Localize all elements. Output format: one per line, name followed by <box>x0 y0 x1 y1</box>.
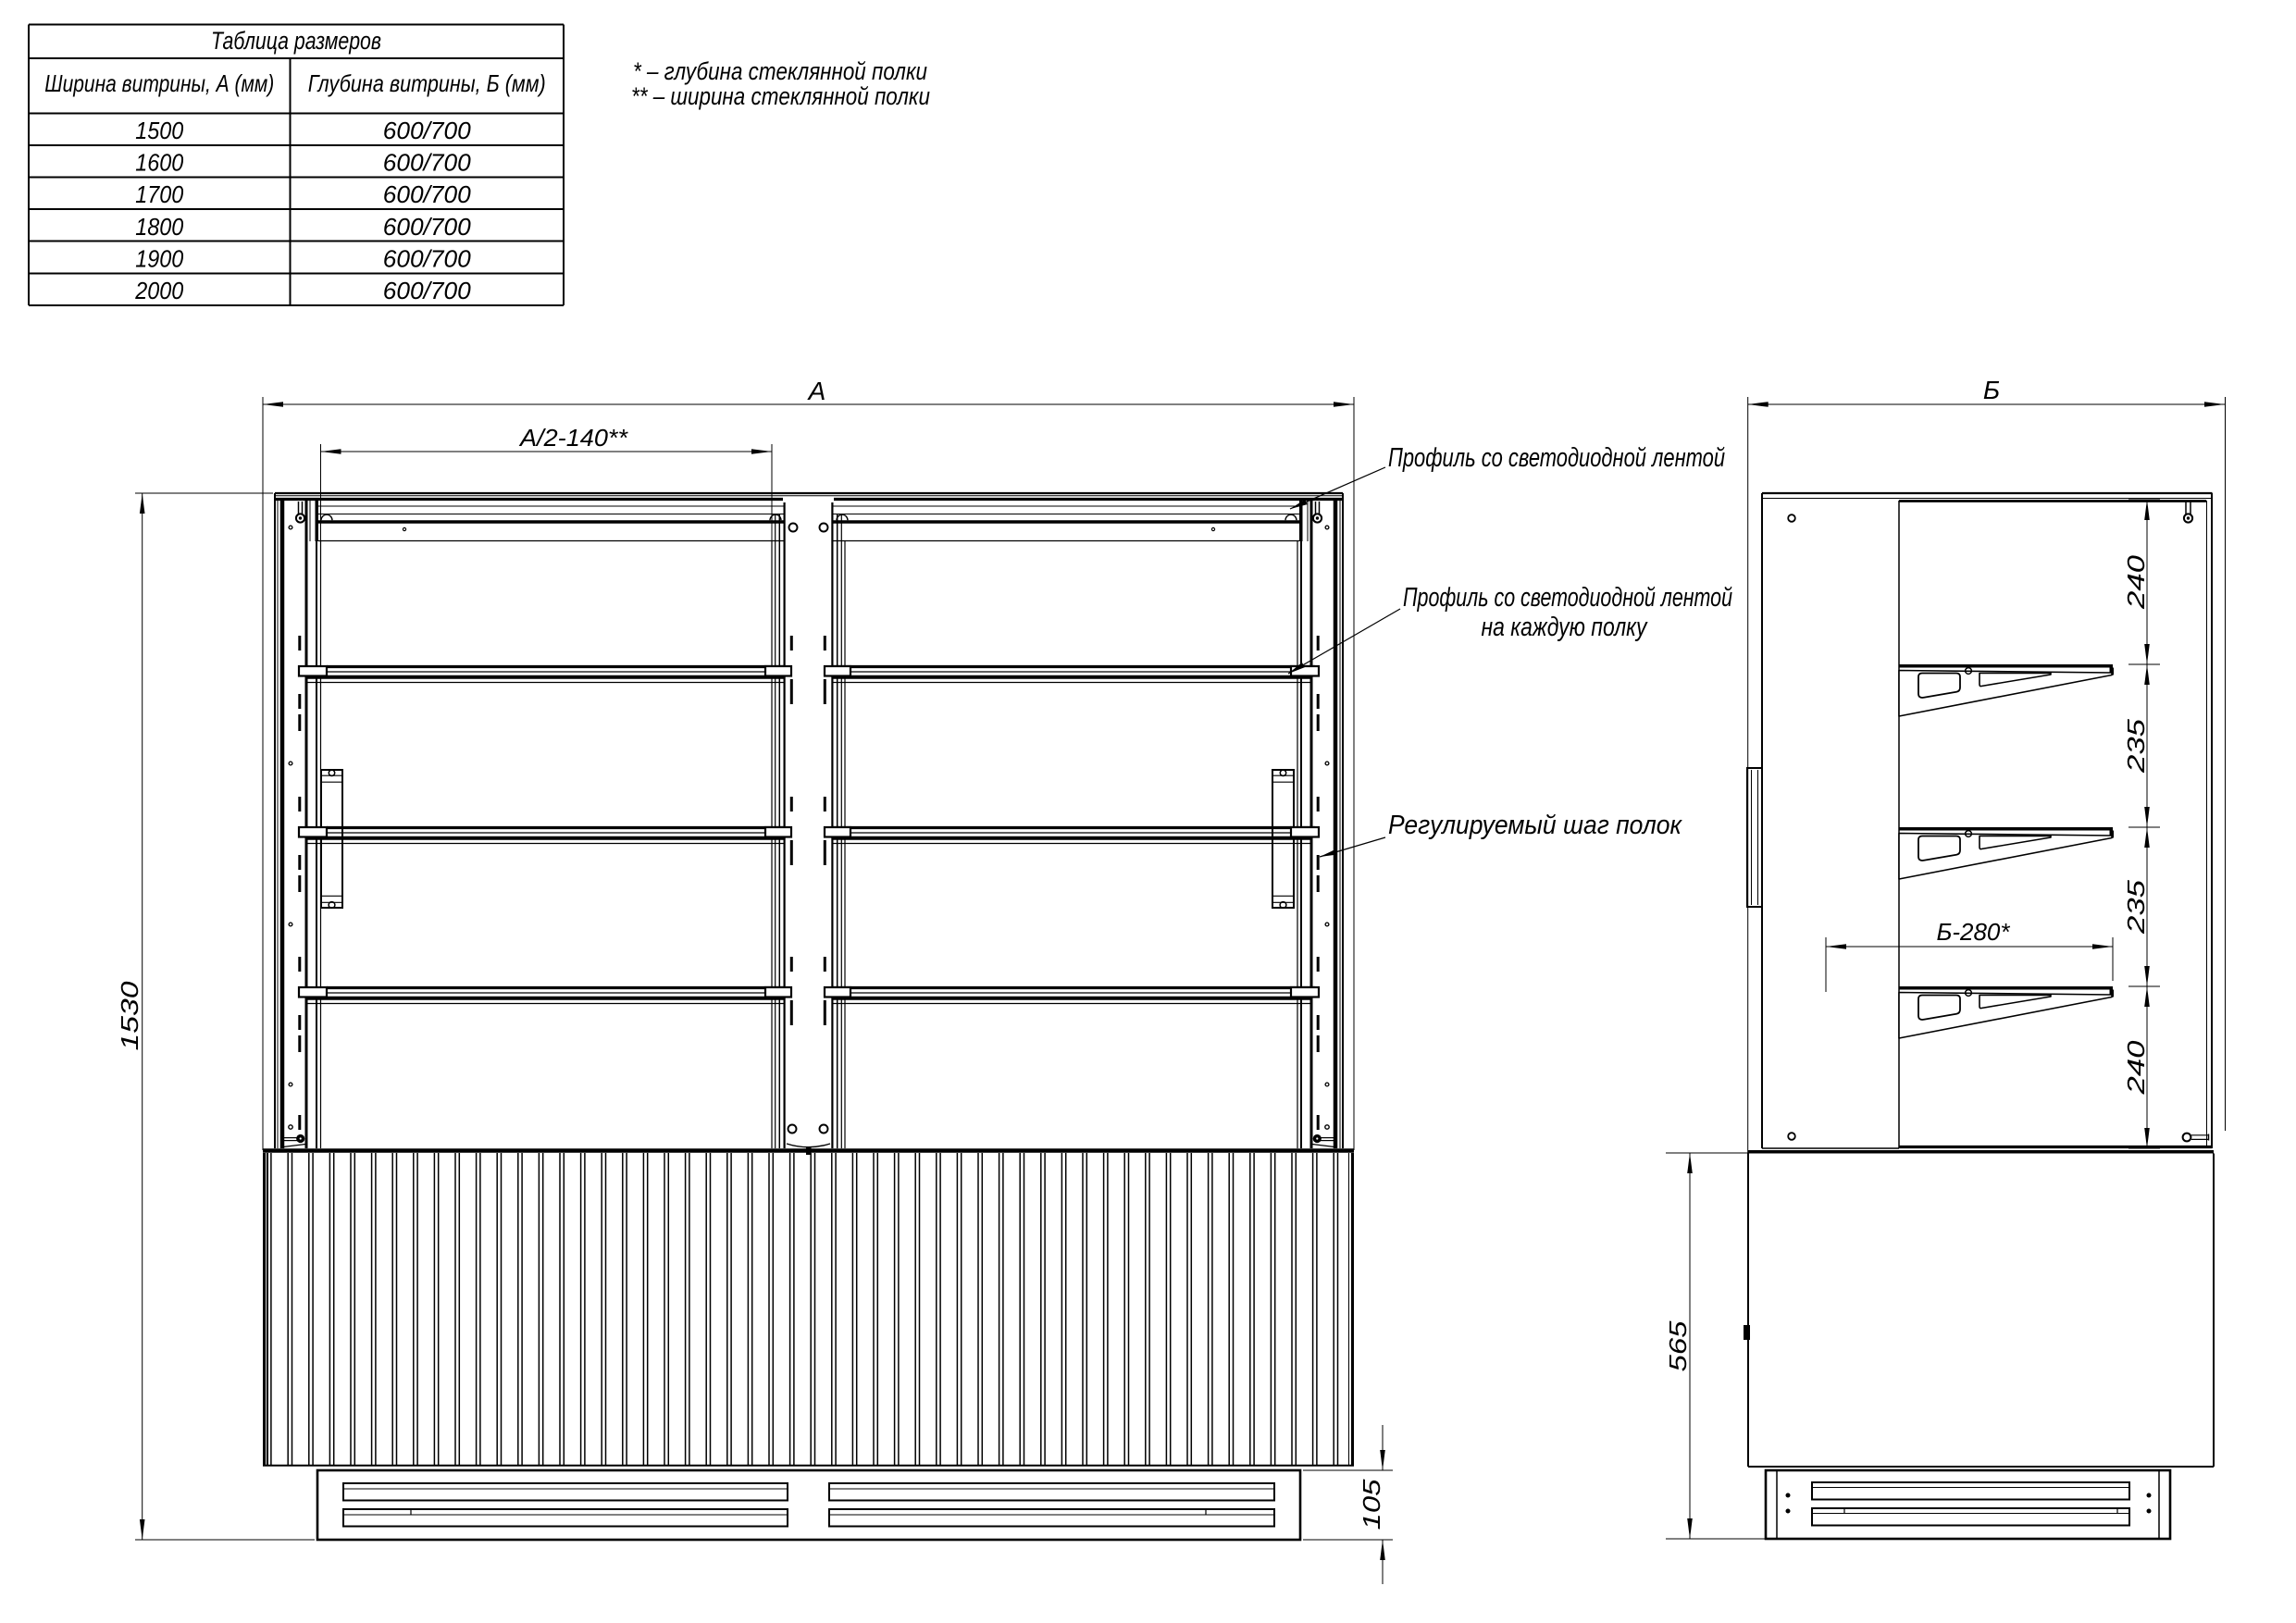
svg-text:600/700: 600/700 <box>383 277 472 304</box>
svg-text:Ширина витрины, А (мм): Ширина витрины, А (мм) <box>44 69 274 97</box>
svg-text:1800: 1800 <box>135 213 183 241</box>
svg-text:565: 565 <box>1664 1320 1692 1372</box>
svg-text:Профиль со светодиодной лентой: Профиль со светодиодной лентой <box>1403 583 1732 613</box>
svg-text:600/700: 600/700 <box>383 149 472 177</box>
svg-text:** – ширина стеклянной полки: ** – ширина стеклянной полки <box>631 82 930 110</box>
svg-text:1500: 1500 <box>135 117 183 144</box>
svg-text:Регулируемый шаг полок: Регулируемый шаг полок <box>1388 811 1682 840</box>
svg-text:А: А <box>807 377 826 405</box>
svg-text:Б: Б <box>1983 376 2000 404</box>
svg-text:235: 235 <box>2122 718 2150 774</box>
svg-text:600/700: 600/700 <box>383 117 472 144</box>
svg-text:600/700: 600/700 <box>383 244 472 272</box>
svg-text:240: 240 <box>2122 1040 2150 1096</box>
svg-text:600/700: 600/700 <box>383 180 472 208</box>
svg-text:240: 240 <box>2122 554 2150 610</box>
svg-text:2000: 2000 <box>134 277 183 304</box>
svg-text:1600: 1600 <box>135 149 183 177</box>
svg-text:1530: 1530 <box>116 981 143 1051</box>
svg-text:1700: 1700 <box>135 180 183 208</box>
svg-text:1900: 1900 <box>135 244 183 272</box>
svg-text:А/2-140**: А/2-140** <box>518 424 628 452</box>
svg-text:105: 105 <box>1358 1479 1385 1530</box>
svg-text:* – глубина стеклянной полки: * – глубина стеклянной полки <box>633 57 927 85</box>
svg-text:Б-280*: Б-280* <box>1937 918 2011 946</box>
svg-text:235: 235 <box>2122 879 2150 935</box>
svg-text:600/700: 600/700 <box>383 213 472 241</box>
svg-text:на каждую полку: на каждую полку <box>1482 613 1648 642</box>
svg-text:Профиль со светодиодной лентой: Профиль со светодиодной лентой <box>1388 443 1725 473</box>
svg-text:Глубина витрины, Б (мм): Глубина витрины, Б (мм) <box>308 69 546 97</box>
svg-text:Таблица размеров: Таблица размеров <box>211 27 381 55</box>
